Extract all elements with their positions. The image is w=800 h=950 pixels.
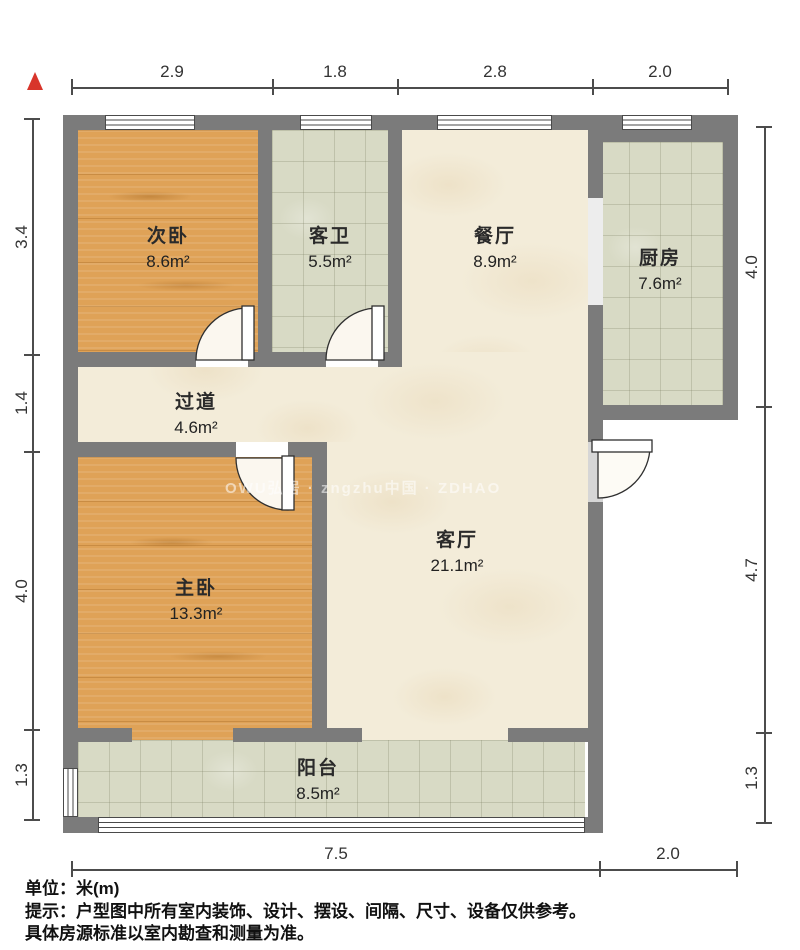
dim-value: 1.8 xyxy=(310,62,360,82)
dim-value: 1.3 xyxy=(742,753,762,803)
room-area: 21.1m² xyxy=(397,554,517,578)
room-area: 8.6m² xyxy=(108,250,228,274)
tick xyxy=(24,354,40,356)
door-swing-layer xyxy=(0,0,800,950)
room-label-living-room: 客厅 21.1m² xyxy=(397,528,517,578)
guest-bathroom-door xyxy=(326,306,384,360)
tick xyxy=(24,729,40,731)
tick xyxy=(272,79,274,95)
dim-value: 2.9 xyxy=(147,62,197,82)
disclaimer-line2: 具体房源标准以室内勘查和测量为准。 xyxy=(25,919,314,944)
secondary-bedroom-door xyxy=(196,306,254,360)
dim-value: 3.4 xyxy=(12,212,32,262)
dim-value: 1.3 xyxy=(12,750,32,800)
tick xyxy=(736,861,738,877)
room-name: 阳台 xyxy=(258,756,378,782)
room-area: 5.5m² xyxy=(270,250,390,274)
unit-note: 单位：米(m) xyxy=(25,874,119,899)
room-name: 主卧 xyxy=(136,576,256,602)
tick xyxy=(756,126,772,128)
dim-line-left xyxy=(32,119,34,820)
room-name: 厨房 xyxy=(600,246,720,272)
tick xyxy=(727,79,729,95)
room-label-kitchen: 厨房 7.6m² xyxy=(600,246,720,296)
dim-line-top xyxy=(72,87,728,89)
room-name: 客厅 xyxy=(397,528,517,554)
room-area: 8.5m² xyxy=(258,782,378,806)
tick xyxy=(756,822,772,824)
room-area: 7.6m² xyxy=(600,272,720,296)
room-name: 餐厅 xyxy=(435,224,555,250)
room-label-balcony: 阳台 8.5m² xyxy=(258,756,378,806)
room-label-master-bedroom: 主卧 13.3m² xyxy=(136,576,256,626)
room-label-secondary-bedroom: 次卧 8.6m² xyxy=(108,224,228,274)
room-name: 过道 xyxy=(136,390,256,416)
tick xyxy=(71,79,73,95)
dim-line-right xyxy=(764,127,766,823)
tick xyxy=(756,732,772,734)
room-name: 次卧 xyxy=(108,224,228,250)
floor-plan: OWU弘居 · zngzhu中国 · ZDHAO 次卧 8.6m² 客卫 5.5… xyxy=(0,0,800,950)
tick xyxy=(24,118,40,120)
dim-value: 4.7 xyxy=(742,545,762,595)
dim-value: 4.0 xyxy=(742,242,762,292)
room-area: 4.6m² xyxy=(136,416,256,440)
room-area: 13.3m² xyxy=(136,602,256,626)
tick xyxy=(756,406,772,408)
dim-value: 7.5 xyxy=(311,844,361,864)
room-label-hallway: 过道 4.6m² xyxy=(136,390,256,440)
dim-value: 4.0 xyxy=(12,566,32,616)
tick xyxy=(24,451,40,453)
room-area: 8.9m² xyxy=(435,250,555,274)
entry-door xyxy=(592,440,652,498)
tick xyxy=(397,79,399,95)
tick xyxy=(592,79,594,95)
dim-value: 2.0 xyxy=(635,62,685,82)
room-name: 客卫 xyxy=(270,224,390,250)
room-label-dining-room: 餐厅 8.9m² xyxy=(435,224,555,274)
watermark: OWU弘居 · zngzhu中国 · ZDHAO xyxy=(225,477,595,499)
dim-value: 1.4 xyxy=(12,378,32,428)
tick xyxy=(599,861,601,877)
dim-line-bottom xyxy=(72,869,737,871)
dim-value: 2.0 xyxy=(643,844,693,864)
tick xyxy=(24,819,40,821)
room-label-guest-bathroom: 客卫 5.5m² xyxy=(270,224,390,274)
dim-value: 2.8 xyxy=(470,62,520,82)
